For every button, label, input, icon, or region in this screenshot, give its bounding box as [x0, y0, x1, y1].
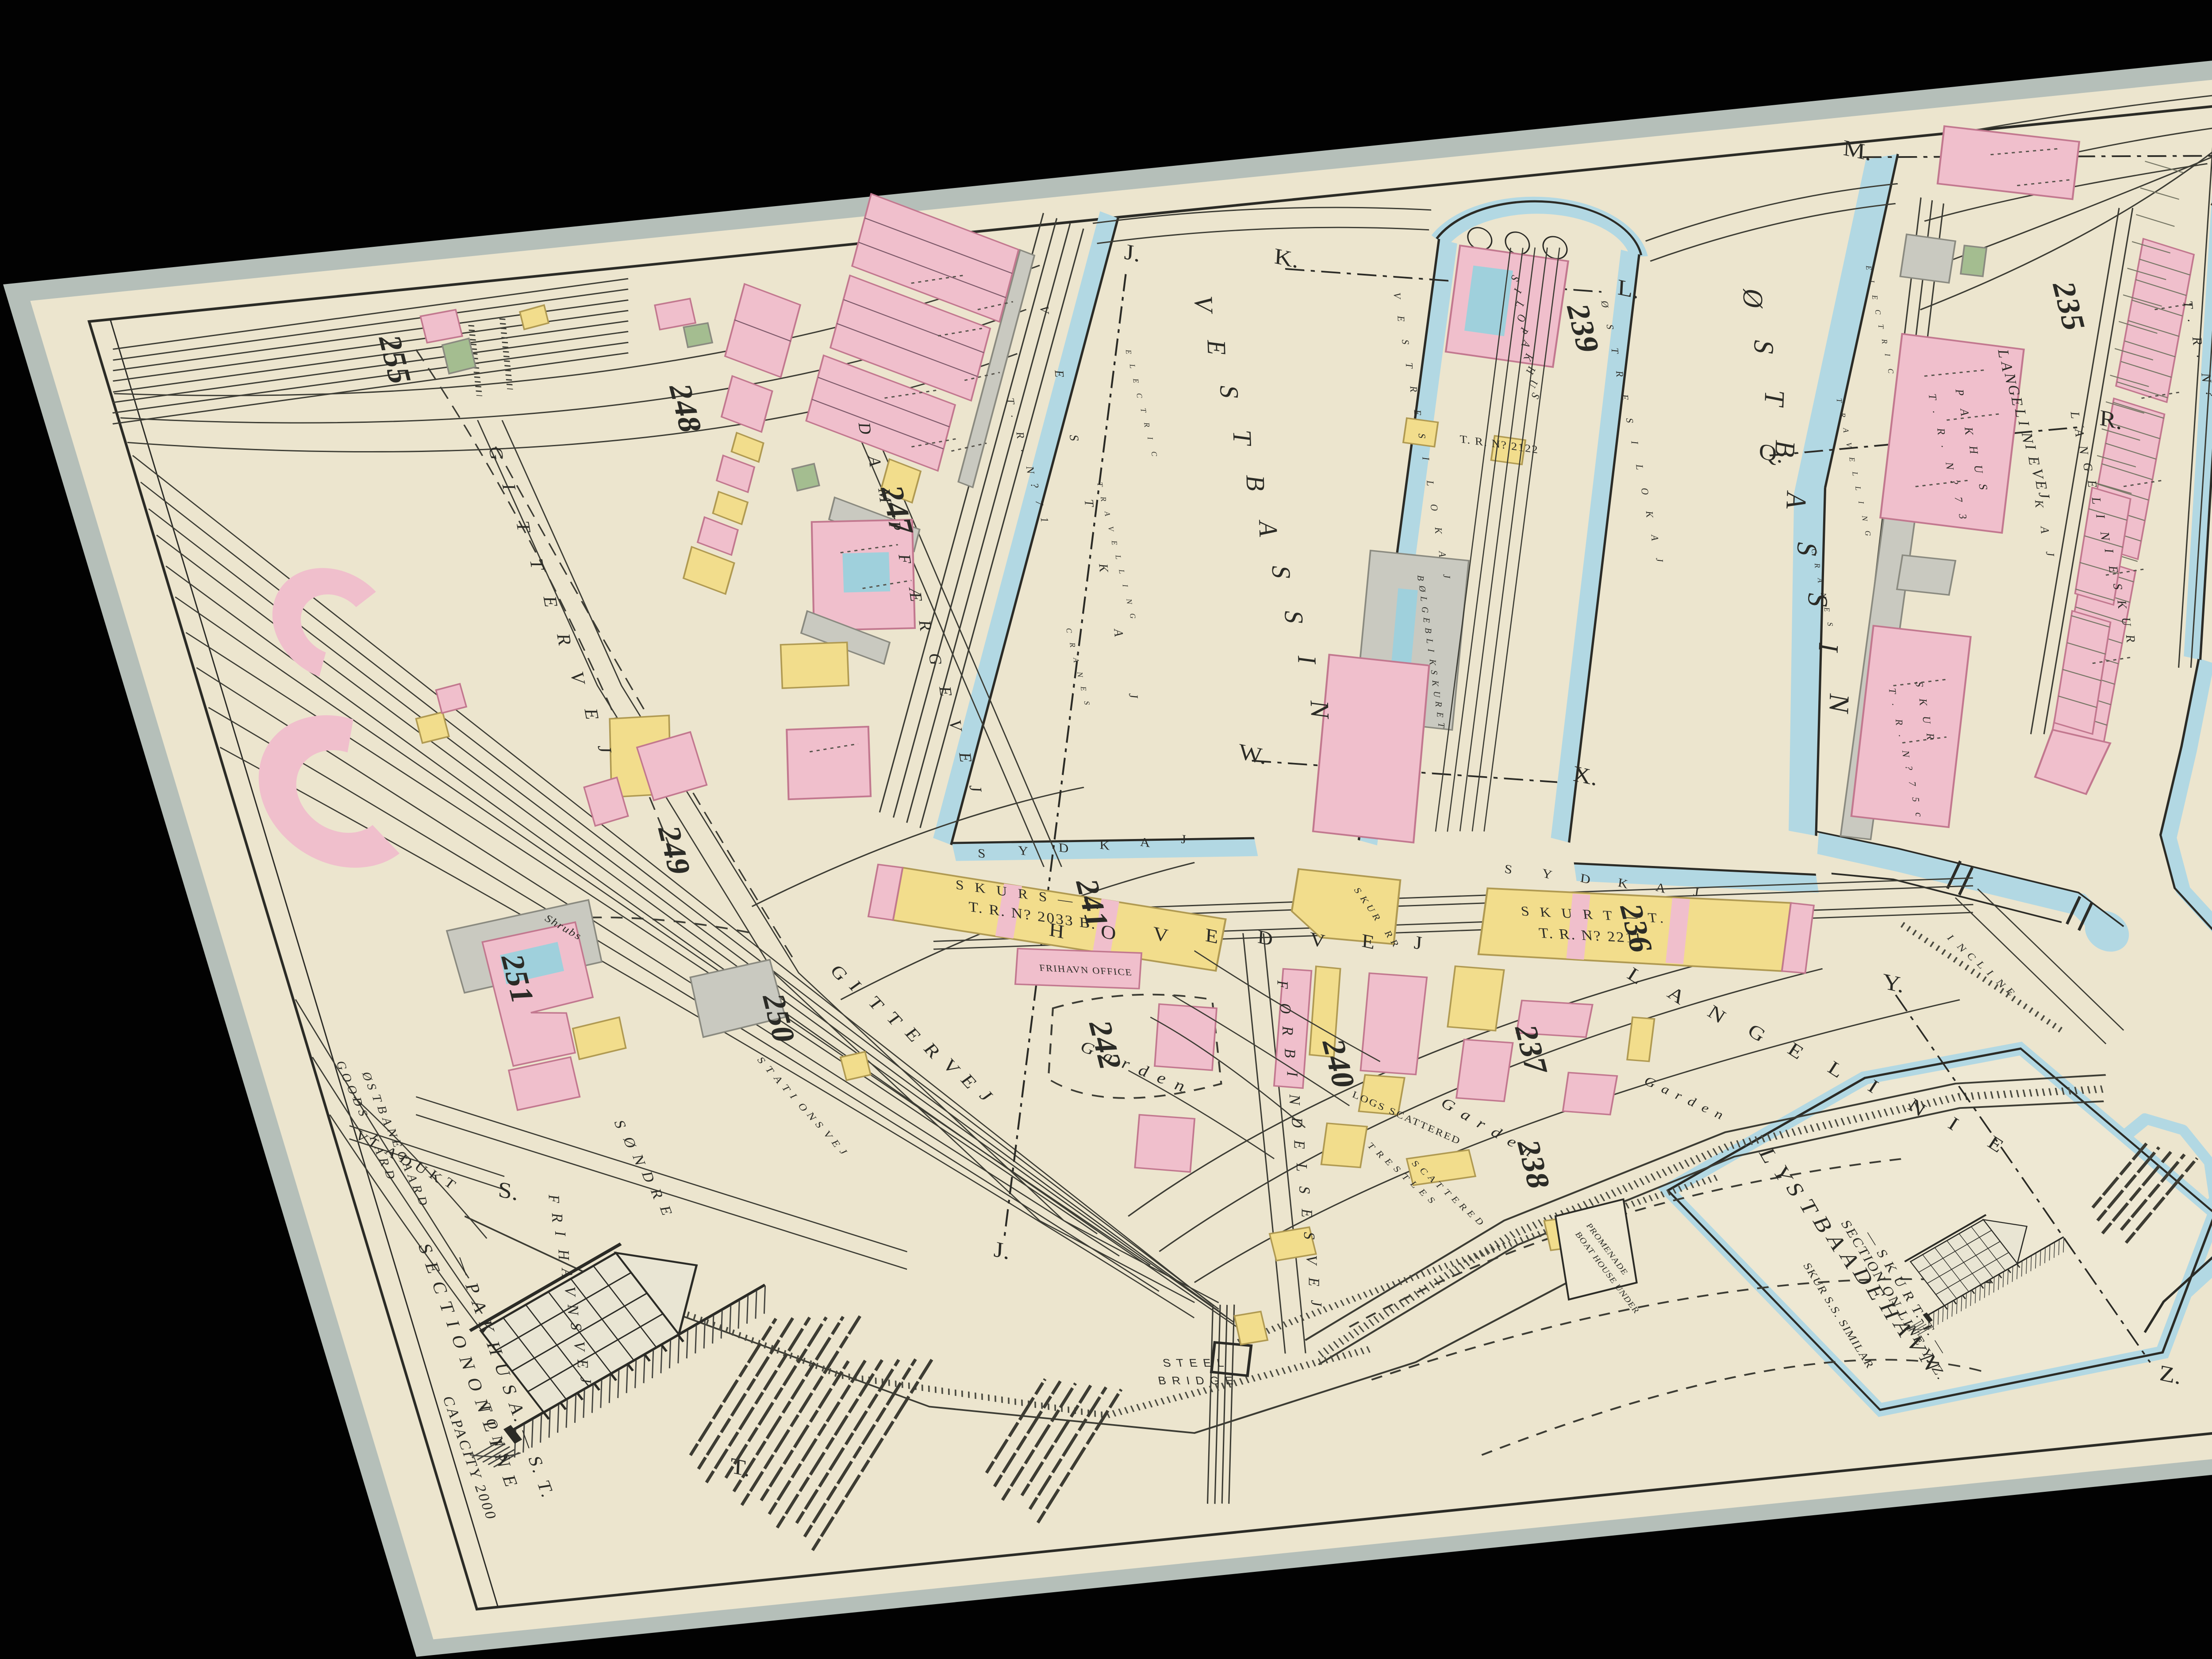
svg-text:R: R	[1014, 432, 1026, 439]
svg-text:A: A	[379, 1117, 395, 1127]
svg-text:D: D	[1579, 871, 1591, 887]
svg-text:N: N	[2076, 445, 2091, 455]
svg-text:I: I	[498, 484, 519, 490]
svg-text:S: S	[1067, 434, 1081, 442]
svg-text:R: R	[376, 1157, 392, 1167]
svg-text:I: I	[2015, 421, 2032, 426]
svg-text:V: V	[1106, 526, 1116, 532]
svg-text:R: R	[1099, 497, 1108, 502]
svg-text:N: N	[1125, 599, 1134, 605]
svg-text:Y: Y	[366, 1134, 382, 1143]
svg-text:B: B	[374, 1105, 390, 1115]
svg-text:E: E	[1361, 930, 1375, 954]
svg-text:L: L	[2067, 411, 2082, 420]
svg-text:N: N	[2001, 373, 2019, 384]
svg-text:E: E	[2085, 480, 2100, 488]
svg-text:D: D	[414, 1196, 430, 1206]
svg-text:J.: J.	[993, 1236, 1010, 1264]
svg-text:E: E	[1124, 349, 1133, 354]
svg-text:N: N	[2018, 433, 2036, 444]
svg-text:K: K	[1099, 838, 1110, 853]
svg-text:E: E	[539, 596, 561, 607]
svg-text:U: U	[1920, 716, 1932, 724]
svg-text:E: E	[935, 686, 956, 697]
svg-text:E: E	[955, 752, 975, 763]
svg-text:C: C	[1064, 628, 1074, 633]
svg-text:S: S	[978, 846, 986, 861]
svg-text:.: .	[1009, 415, 1021, 418]
svg-text:V: V	[1310, 928, 1326, 952]
svg-text:K: K	[1644, 510, 1656, 518]
svg-text:K: K	[2032, 499, 2046, 509]
svg-text:T: T	[1082, 499, 1096, 507]
svg-text:T: T	[512, 521, 534, 533]
svg-text:U: U	[1971, 465, 1985, 474]
svg-text:V: V	[2028, 468, 2047, 479]
svg-text:G: G	[484, 447, 507, 460]
svg-text:J: J	[593, 746, 615, 753]
svg-text:G: G	[2080, 462, 2095, 472]
svg-text:U: U	[2119, 617, 2134, 627]
svg-text:A: A	[404, 1173, 420, 1184]
svg-text:S: S	[355, 1109, 370, 1117]
svg-text:L: L	[1994, 349, 2012, 359]
svg-text:A: A	[1111, 628, 1126, 638]
svg-text:A: A	[1140, 835, 1150, 851]
svg-text:1: 1	[1038, 517, 1050, 523]
svg-text:A: A	[399, 1162, 416, 1172]
svg-text:T: T	[2180, 300, 2196, 309]
svg-text:D: D	[1058, 840, 1068, 856]
svg-text:A: A	[371, 1146, 388, 1156]
svg-text:R: R	[1142, 422, 1152, 428]
svg-text:J.: J.	[1124, 239, 1141, 267]
svg-text:E: E	[2008, 397, 2026, 406]
svg-text:N: N	[2198, 373, 2212, 383]
svg-text:L: L	[1117, 569, 1126, 574]
svg-text:A: A	[1958, 408, 1972, 417]
svg-text:N: N	[384, 1128, 400, 1138]
svg-text:G: G	[1128, 613, 1137, 619]
svg-text:G: G	[2005, 385, 2023, 396]
svg-text:R.: R.	[2099, 405, 2123, 434]
svg-text:N: N	[1860, 515, 1869, 521]
svg-text:Ø: Ø	[359, 1072, 375, 1081]
svg-text:A: A	[1655, 880, 1667, 896]
svg-text:J: J	[965, 785, 985, 792]
svg-text:V: V	[1152, 922, 1169, 946]
svg-text:C: C	[1874, 309, 1882, 315]
svg-text:O: O	[338, 1073, 355, 1083]
svg-text:E: E	[2025, 456, 2043, 466]
svg-text:T: T	[525, 559, 548, 570]
svg-text:Y.: Y.	[1882, 969, 1904, 998]
svg-text:7: 7	[1033, 500, 1045, 506]
svg-text:?: ?	[1028, 483, 1041, 488]
svg-text:I: I	[2022, 444, 2039, 450]
svg-text:V: V	[566, 671, 589, 685]
svg-text:E: E	[389, 1139, 405, 1148]
svg-text:V: V	[945, 719, 966, 732]
svg-text:E: E	[2106, 565, 2121, 574]
svg-text:A: A	[1997, 361, 2016, 373]
svg-text:L.: L.	[1617, 274, 1640, 303]
svg-text:Y: Y	[1541, 866, 1553, 882]
svg-text:A: A	[1649, 534, 1661, 542]
svg-text:K: K	[2114, 600, 2129, 609]
svg-text:C: C	[1810, 548, 1819, 554]
svg-text:C: C	[1135, 393, 1144, 398]
svg-text:G: G	[334, 1061, 350, 1070]
svg-text:A: A	[1071, 657, 1081, 663]
svg-text:E: E	[1131, 379, 1141, 383]
svg-text:N: N	[1819, 593, 1828, 599]
svg-text:P: P	[1953, 389, 1966, 396]
svg-text:E: E	[1110, 540, 1119, 545]
svg-text:.: .	[1018, 449, 1031, 452]
svg-text:R: R	[915, 620, 936, 632]
svg-text:J: J	[1181, 832, 1187, 847]
svg-text:E: E	[2032, 480, 2050, 490]
svg-text:D: D	[382, 1170, 398, 1180]
svg-text:E: E	[1079, 686, 1088, 691]
svg-text:L: L	[2089, 497, 2104, 505]
svg-text:T: T	[1004, 398, 1017, 405]
svg-text:K: K	[1096, 563, 1111, 573]
svg-text:Z.: Z.	[2159, 1360, 2181, 1389]
svg-text:O: O	[1639, 487, 1651, 495]
svg-text:T: T	[369, 1094, 385, 1103]
svg-text:S: S	[364, 1083, 379, 1091]
svg-text:C: C	[1886, 368, 1895, 374]
svg-text:Q.: Q.	[1758, 438, 1784, 468]
svg-text:L: L	[2011, 409, 2029, 418]
svg-text:L: L	[1128, 364, 1137, 369]
svg-text:G: G	[925, 653, 945, 666]
svg-text:3: 3	[1956, 513, 1969, 520]
svg-text:A: A	[2038, 525, 2052, 535]
svg-text:V: V	[1037, 305, 1052, 314]
svg-text:Ø: Ø	[1599, 300, 1611, 308]
svg-text:S.: S.	[497, 1176, 518, 1206]
svg-text:S: S	[1083, 701, 1092, 705]
svg-text:J: J	[1413, 931, 1423, 954]
svg-text:Y: Y	[1018, 843, 1028, 859]
svg-text:H: H	[1966, 445, 1981, 454]
svg-text:7: 7	[1952, 496, 1964, 502]
svg-text:D: D	[1257, 926, 1273, 950]
svg-text:A: A	[2072, 428, 2087, 438]
svg-text:O: O	[344, 1085, 360, 1095]
svg-text:D: D	[349, 1097, 366, 1107]
svg-text:R: R	[409, 1185, 425, 1194]
svg-text:S T E E L: S T E E L	[1162, 1356, 1226, 1369]
svg-text:L: L	[1114, 555, 1123, 559]
svg-text:F: F	[895, 554, 915, 564]
svg-text:R: R	[1924, 733, 1936, 741]
svg-text:J: J	[2035, 492, 2053, 498]
svg-text:?: ?	[1948, 479, 1960, 485]
svg-text:R: R	[1935, 428, 1947, 435]
svg-text:C: C	[1150, 451, 1159, 456]
svg-text:K.: K.	[1274, 243, 1299, 273]
svg-text:G: G	[394, 1151, 411, 1161]
svg-text:A: A	[1103, 511, 1112, 517]
svg-text:R: R	[553, 634, 576, 646]
svg-text:E: E	[1205, 924, 1219, 948]
svg-text:E: E	[580, 709, 603, 720]
svg-text:N: N	[1943, 462, 1956, 470]
svg-text:K: K	[1617, 875, 1628, 892]
svg-text:R: R	[1068, 642, 1077, 648]
svg-text:N: N	[1023, 466, 1036, 474]
svg-text:N: N	[2097, 531, 2112, 541]
svg-text:X.: X.	[1572, 761, 1598, 791]
svg-text:N: N	[1075, 672, 1085, 678]
svg-text:Æ: Æ	[905, 587, 926, 602]
svg-text:G: G	[1863, 530, 1872, 536]
svg-text:R: R	[2123, 634, 2138, 644]
svg-text:T: T	[1926, 393, 1938, 400]
svg-text:N: N	[1900, 750, 1912, 758]
svg-text:B R I D G E: B R I D G E	[1157, 1374, 1236, 1387]
svg-text:D: D	[854, 422, 875, 435]
svg-text:S: S	[1976, 483, 1990, 490]
svg-text:E: E	[1052, 370, 1066, 378]
svg-text:R: R	[2189, 337, 2205, 346]
svg-text:K: K	[1962, 427, 1976, 436]
svg-text:S: S	[2110, 583, 2125, 590]
svg-text:A: A	[864, 456, 885, 468]
